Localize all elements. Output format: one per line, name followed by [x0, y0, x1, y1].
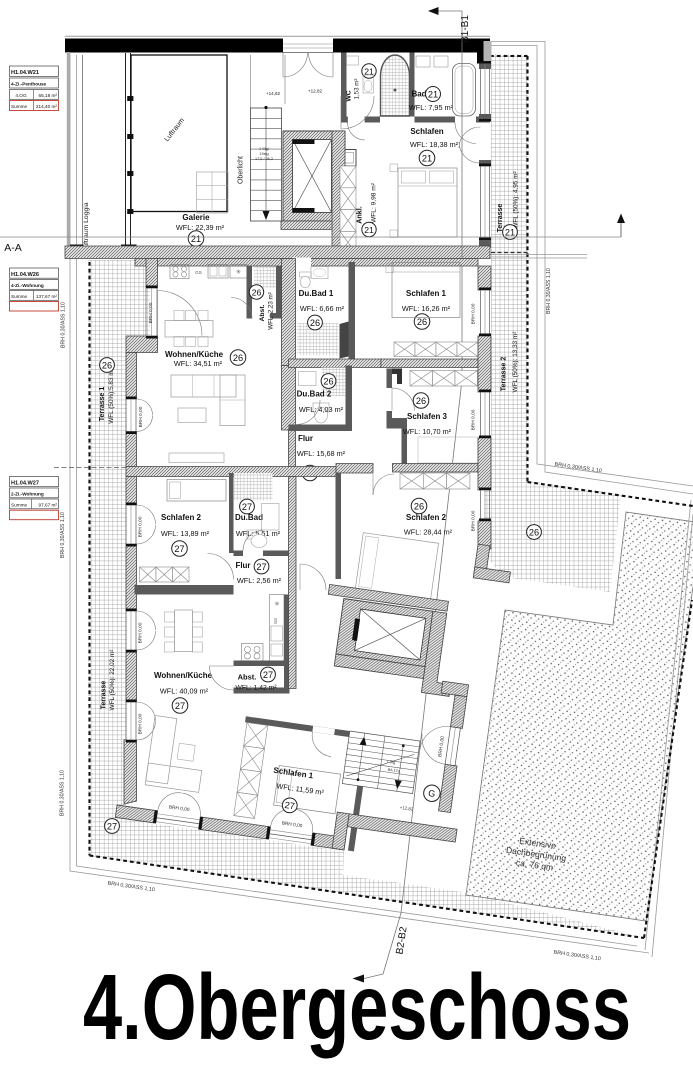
- svg-text:G: G: [428, 788, 436, 799]
- svg-text:✳: ✳: [236, 268, 242, 276]
- svg-text:26: 26: [529, 527, 539, 537]
- svg-text:4-Zi.-Penthouse: 4-Zi.-Penthouse: [11, 82, 47, 87]
- svg-text:27: 27: [107, 821, 117, 831]
- svg-text:Summe: Summe: [11, 503, 28, 508]
- svg-text:GS: GS: [195, 270, 202, 275]
- svg-text:27: 27: [263, 670, 273, 680]
- svg-text:27: 27: [242, 502, 252, 512]
- svg-text:WFL: 13,89 m²: WFL: 13,89 m²: [161, 529, 210, 538]
- svg-text:Du.Bad 1: Du.Bad 1: [299, 289, 334, 298]
- svg-text:WFL: 15,68 m²: WFL: 15,68 m²: [297, 449, 346, 458]
- svg-text:21: 21: [505, 227, 515, 237]
- svg-text:Oberlicht: Oberlicht: [238, 156, 245, 184]
- svg-text:Wohnen/Küche: Wohnen/Küche: [154, 671, 213, 680]
- svg-text:Schlafen 3: Schlafen 3: [407, 412, 448, 421]
- svg-text:BRH 0,30/ASS 1,10: BRH 0,30/ASS 1,10: [60, 512, 66, 558]
- svg-text:19stg: 19stg: [259, 152, 268, 156]
- svg-text:26: 26: [417, 317, 427, 327]
- svg-text:B1-B1: B1-B1: [460, 15, 471, 43]
- svg-text:WFL: 18,38 m²: WFL: 18,38 m²: [410, 140, 459, 149]
- svg-text:+12,82: +12,82: [308, 89, 323, 94]
- svg-text:WFL: 28,44 m²: WFL: 28,44 m²: [404, 528, 453, 537]
- svg-text:BRH 0,00: BRH 0,00: [148, 302, 154, 323]
- svg-text:4-Zi.-Wohnung: 4-Zi.-Wohnung: [11, 283, 44, 288]
- svg-text:2-Zi.-Wohnung: 2-Zi.-Wohnung: [11, 492, 44, 497]
- svg-text:A-A: A-A: [4, 242, 22, 254]
- svg-text:WFL: 6,66 m²: WFL: 6,66 m²: [300, 304, 345, 313]
- svg-text:WFL: 2,56 m²: WFL: 2,56 m²: [237, 576, 282, 585]
- svg-text:Summe: Summe: [11, 294, 28, 299]
- svg-text:✳: ✳: [274, 600, 280, 608]
- svg-text:BRH 0,00: BRH 0,00: [138, 516, 144, 537]
- svg-text:Abst.: Abst.: [259, 304, 266, 321]
- svg-text:27: 27: [174, 544, 184, 554]
- svg-text:BRH 0,30/ASS 1,10: BRH 0,30/ASS 1,10: [546, 268, 552, 314]
- svg-text:Terrasse: Terrasse: [101, 681, 108, 710]
- svg-text:Galerie: Galerie: [182, 213, 210, 222]
- svg-text:26: 26: [323, 376, 333, 386]
- svg-text:17,5 / 28,2: 17,5 / 28,2: [255, 157, 273, 161]
- svg-text:BRH 0,00: BRH 0,00: [471, 303, 477, 324]
- svg-text:Schlafen 2: Schlafen 2: [406, 513, 447, 522]
- svg-text:WFL: 1,42 m²: WFL: 1,42 m²: [235, 685, 277, 692]
- svg-text:Luftraum Loggia: Luftraum Loggia: [83, 202, 90, 251]
- svg-text:Du.Bad 2: Du.Bad 2: [297, 390, 332, 399]
- svg-text:1 Stg!: 1 Stg!: [259, 147, 269, 151]
- svg-text:BRH 0,00: BRH 0,00: [138, 713, 144, 734]
- svg-text:Summe: Summe: [11, 104, 28, 109]
- svg-text:WFL: 22,39 m²: WFL: 22,39 m²: [176, 223, 225, 232]
- svg-text:97,67 m²: 97,67 m²: [39, 503, 58, 508]
- svg-text:21: 21: [428, 89, 438, 99]
- svg-text:Abst.: Abst.: [238, 673, 257, 682]
- svg-text:BRH 0,30/ASS 1,10: BRH 0,30/ASS 1,10: [60, 770, 66, 816]
- svg-text:Flur: Flur: [235, 561, 250, 570]
- svg-text:WFL (50%): 22,02 m²: WFL (50%): 22,02 m²: [109, 650, 116, 711]
- svg-text:26: 26: [252, 287, 262, 297]
- svg-text:27: 27: [284, 800, 296, 811]
- svg-text:H1.04.W27: H1.04.W27: [11, 481, 39, 487]
- svg-text:4.Obergeschoss: 4.Obergeschoss: [83, 955, 631, 1059]
- svg-text:Ankl.: Ankl.: [355, 206, 364, 224]
- svg-text:WFL: 10,70 m²: WFL: 10,70 m²: [403, 427, 452, 436]
- svg-text:BRH 0,00: BRH 0,00: [138, 406, 144, 427]
- svg-text:WFL (50%): 4,95 m²: WFL (50%): 4,95 m²: [513, 171, 520, 228]
- svg-text:21: 21: [364, 225, 374, 235]
- svg-text:H1.04.W26: H1.04.W26: [11, 272, 39, 278]
- svg-text:Schlafen 2: Schlafen 2: [161, 513, 202, 522]
- svg-text:WFL (50%):5,83 m²: WFL (50%):5,83 m²: [108, 368, 115, 424]
- svg-text:WFL: 40,09 m²: WFL: 40,09 m²: [160, 687, 209, 696]
- svg-text:27: 27: [175, 701, 185, 711]
- svg-text:WFL: 4,03 m²: WFL: 4,03 m²: [299, 405, 344, 414]
- svg-text:Bad: Bad: [411, 90, 426, 99]
- svg-text:26: 26: [416, 396, 426, 406]
- svg-text:WC: WC: [346, 90, 353, 101]
- svg-text:Flur: Flur: [298, 434, 313, 443]
- svg-text:21: 21: [422, 153, 432, 163]
- svg-text:4.OG: 4.OG: [15, 93, 27, 98]
- svg-text:+14,62: +14,62: [266, 91, 281, 96]
- svg-text:27: 27: [256, 562, 266, 572]
- svg-text:BRH 0,00: BRH 0,00: [471, 510, 477, 531]
- svg-text:WFL: 34,51 m²: WFL: 34,51 m²: [174, 359, 223, 368]
- svg-text:26: 26: [310, 318, 320, 328]
- svg-text:WFL: 2,23 m²: WFL: 2,23 m²: [268, 292, 275, 329]
- svg-text:H1.04.W21: H1.04.W21: [11, 70, 39, 76]
- svg-text:26: 26: [102, 360, 112, 370]
- svg-text:65,18 m²: 65,18 m²: [39, 93, 58, 98]
- svg-text:WFL: 16,26 m²: WFL: 16,26 m²: [402, 304, 451, 313]
- svg-text:GS: GS: [273, 618, 278, 624]
- svg-text:Schlafen 1: Schlafen 1: [406, 289, 447, 298]
- svg-text:1,53 m²: 1,53 m²: [354, 79, 361, 100]
- svg-text:Terrasse: Terrasse: [497, 204, 504, 233]
- svg-text:21: 21: [191, 234, 201, 244]
- svg-text:137,67 m²: 137,67 m²: [36, 294, 58, 299]
- svg-text:Schlafen: Schlafen: [410, 127, 443, 136]
- svg-text:26: 26: [233, 353, 243, 363]
- svg-text:BRH 0,00: BRH 0,00: [138, 622, 144, 643]
- svg-text:Terrasse 2: Terrasse 2: [501, 357, 508, 392]
- svg-text:Terrasse 1: Terrasse 1: [99, 387, 106, 422]
- svg-text:WFL (50%): 13,33 m²: WFL (50%): 13,33 m²: [512, 332, 519, 393]
- svg-text:WFL: 9,98 m²: WFL: 9,98 m²: [371, 182, 378, 223]
- svg-text:WFL: 7,95 m²: WFL: 7,95 m²: [409, 103, 454, 112]
- svg-text:BRH 0,00: BRH 0,00: [471, 409, 477, 430]
- svg-text:BRH 0,30/ASS 1,10: BRH 0,30/ASS 1,10: [61, 302, 67, 348]
- svg-text:Du.Bad: Du.Bad: [235, 513, 263, 522]
- svg-text:26: 26: [414, 501, 424, 511]
- svg-text:214,40 m²: 214,40 m²: [36, 104, 58, 109]
- svg-text:Wohnen/Küche: Wohnen/Küche: [165, 350, 224, 359]
